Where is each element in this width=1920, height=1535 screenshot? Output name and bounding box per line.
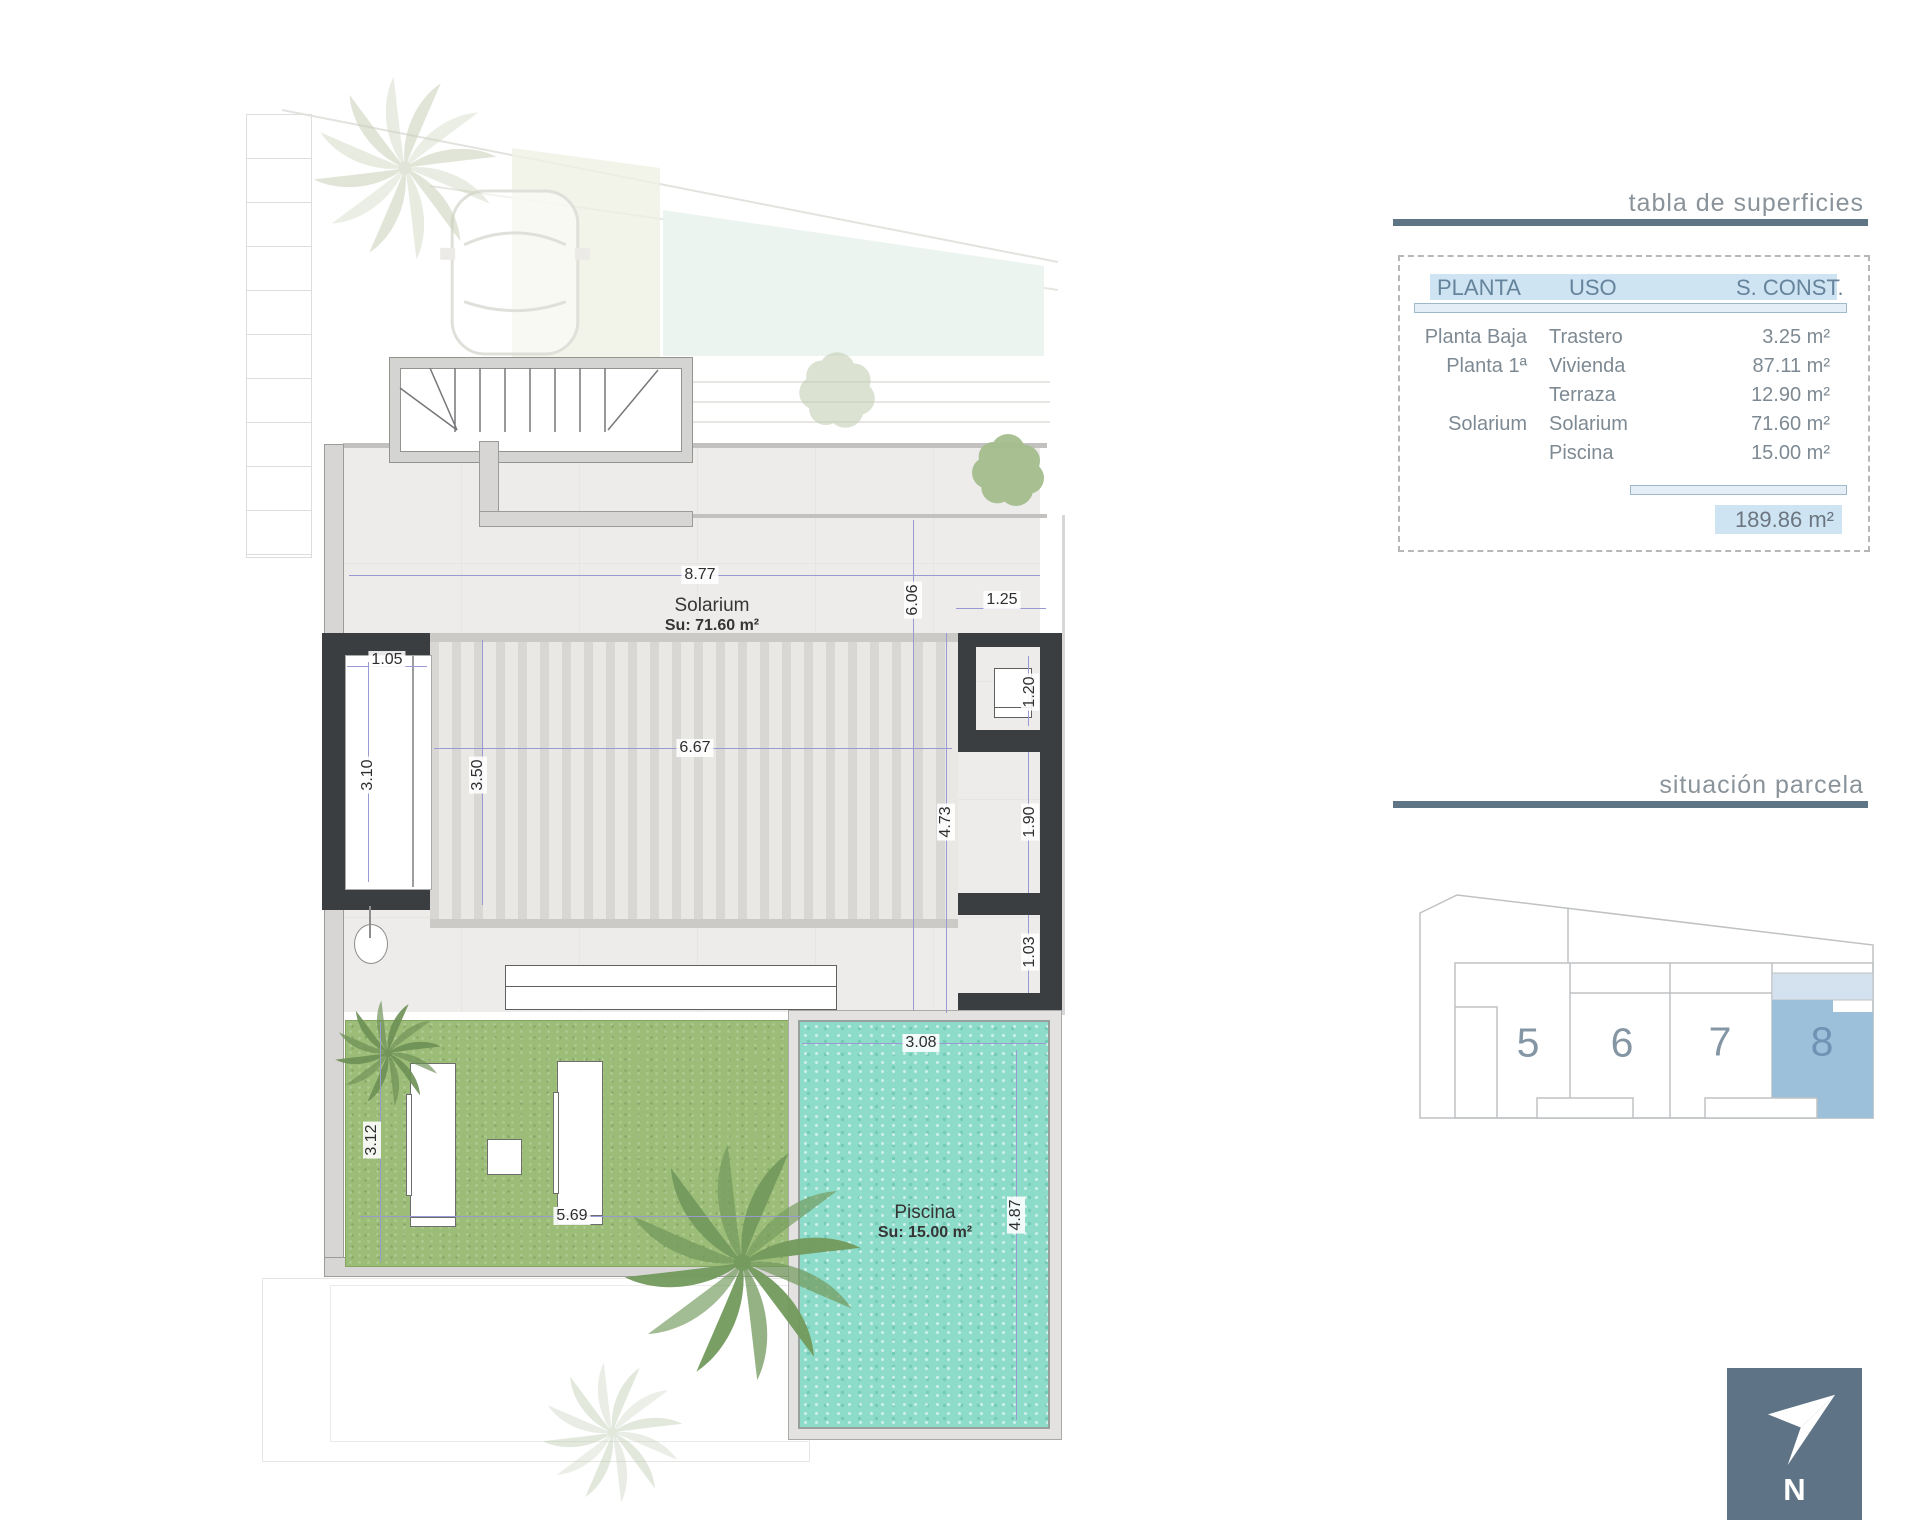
dim-grass-width: 5.69: [553, 1207, 590, 1225]
pergola-slats: [430, 633, 958, 928]
surfaces-table: PLANTA USO S. CONST. Planta Baja Traster…: [1398, 255, 1870, 552]
dim-right-total-height: 6.06: [904, 581, 922, 618]
dim-pergola-width: 6.67: [676, 739, 713, 757]
row-uso: Terraza: [1549, 381, 1616, 410]
solarium-name: Solarium: [665, 595, 759, 617]
plot-number-8-highlighted: 8: [1811, 1019, 1834, 1066]
col-header-uso: USO: [1569, 275, 1617, 301]
total-divider-bar: [1630, 485, 1847, 495]
dim-store-height: 1.20: [1021, 673, 1039, 710]
solarium-label: Solarium Su: 71.60 m²: [665, 595, 759, 635]
plot-number-5: 5: [1517, 1020, 1540, 1067]
store-left-wall: [958, 633, 976, 730]
dim-niche-height: 3.10: [359, 756, 377, 793]
row-sconst: 12.90 m²: [1751, 381, 1830, 410]
sun-lounger-2: [557, 1061, 603, 1225]
side-table: [487, 1139, 522, 1175]
row-uso: Piscina: [1549, 439, 1613, 468]
ghost-palm-tree: [310, 73, 500, 263]
stair-wall-stub: [480, 442, 498, 520]
outdoor-shower: [354, 924, 388, 964]
right-wall: [1040, 633, 1062, 1015]
dim-pool-height: 4.87: [1007, 1196, 1025, 1233]
dim-store-width: 1.25: [983, 591, 1020, 609]
dim-pergola-height: 3.50: [469, 756, 487, 793]
plot-number-7: 7: [1709, 1019, 1732, 1066]
piscina-label: Piscina Su: 15.00 m²: [878, 1202, 972, 1242]
north-arrow-icon: [1745, 1380, 1845, 1470]
dim-top-width: 8.77: [681, 566, 718, 584]
col-header-sconst: S. CONST.: [1736, 275, 1844, 301]
solarium-area: Su: 71.60 m²: [665, 617, 759, 635]
left-wall-bottom: [322, 888, 430, 910]
plot-number-6: 6: [1611, 1020, 1634, 1067]
site-plan-title: situación parcela: [1659, 771, 1864, 800]
plan-right-border: [1062, 515, 1065, 1015]
site-plan-title-rule: [1393, 801, 1868, 808]
row-uso: Solarium: [1549, 410, 1628, 439]
col-header-planta: PLANTA: [1437, 275, 1521, 301]
piscina-name: Piscina: [878, 1202, 972, 1224]
store-top-wall: [958, 633, 1062, 647]
terrace-tree: [968, 430, 1048, 510]
staircase-treads: [400, 368, 662, 432]
dim-opening-low: 1.03: [1021, 933, 1039, 970]
total-surface: 189.86 m²: [1715, 505, 1842, 534]
row-planta: Planta 1ª: [1446, 352, 1527, 381]
terrace-left-wall-upper: [325, 445, 343, 635]
row-sconst: 71.60 m²: [1751, 410, 1830, 439]
row-planta: Planta Baja: [1425, 323, 1527, 352]
dim-niche-width: 1.05: [368, 651, 405, 669]
stair-wall-step: [480, 512, 692, 526]
dim-opening-mid: 1.90: [1021, 803, 1039, 840]
left-niche-door-line: [412, 656, 414, 887]
dim-right-inner-height: 4.73: [937, 803, 955, 840]
header-divider-bar: [1414, 303, 1847, 313]
row-planta: Solarium: [1448, 410, 1527, 439]
row-sconst: 87.11 m²: [1753, 352, 1830, 381]
row-uso: Trastero: [1549, 323, 1623, 352]
bar-mid-right: [958, 893, 1062, 915]
dimension-line: [1016, 1050, 1017, 1420]
row-sconst: 15.00 m²: [1751, 439, 1830, 468]
surfaces-title-rule: [1393, 219, 1868, 226]
north-label: N: [1783, 1472, 1805, 1508]
site-plan-drawing: [1415, 890, 1880, 1130]
row-sconst: 3.25 m²: [1762, 323, 1830, 352]
row-uso: Vivienda: [1549, 352, 1625, 381]
bar-under-store: [958, 730, 1062, 752]
bench: [505, 965, 837, 1010]
ghost-palm-bottom: [540, 1360, 685, 1505]
floor-plan-sheet: 8.77 6.67 6.06 1.25 1.05 3.10 3.50 1.20 …: [0, 0, 1920, 1535]
dim-grass-height: 3.12: [363, 1121, 381, 1158]
dim-pool-width: 3.08: [902, 1034, 939, 1052]
terrace-step-border: [692, 514, 1047, 518]
left-wall-side: [322, 633, 345, 910]
piscina-area: Su: 15.00 m²: [878, 1224, 972, 1242]
surfaces-table-title: tabla de superficies: [1629, 189, 1864, 218]
outdoor-shower-stem: [369, 906, 371, 938]
north-compass-box: N: [1727, 1368, 1862, 1520]
garden-palm-small: [333, 998, 443, 1108]
garden-palm-large: [620, 1140, 865, 1385]
ghost-tree: [795, 348, 879, 432]
